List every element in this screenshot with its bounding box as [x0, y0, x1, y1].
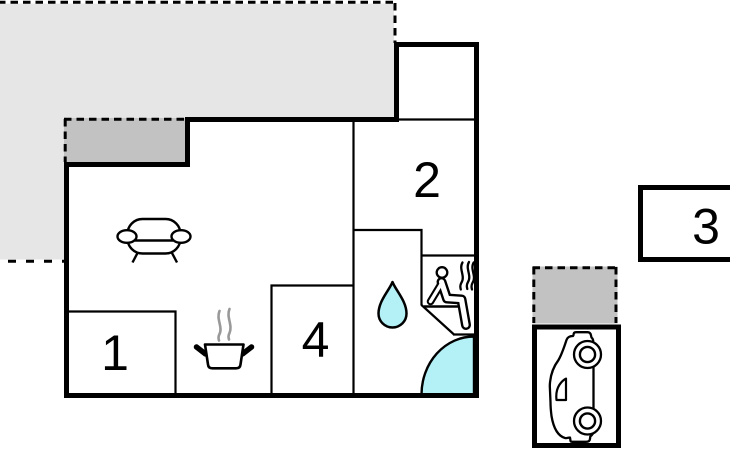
svg-text:1: 1 — [101, 325, 129, 381]
svg-text:2: 2 — [413, 152, 441, 208]
svg-text:3: 3 — [692, 199, 720, 255]
svg-text:4: 4 — [302, 312, 330, 368]
